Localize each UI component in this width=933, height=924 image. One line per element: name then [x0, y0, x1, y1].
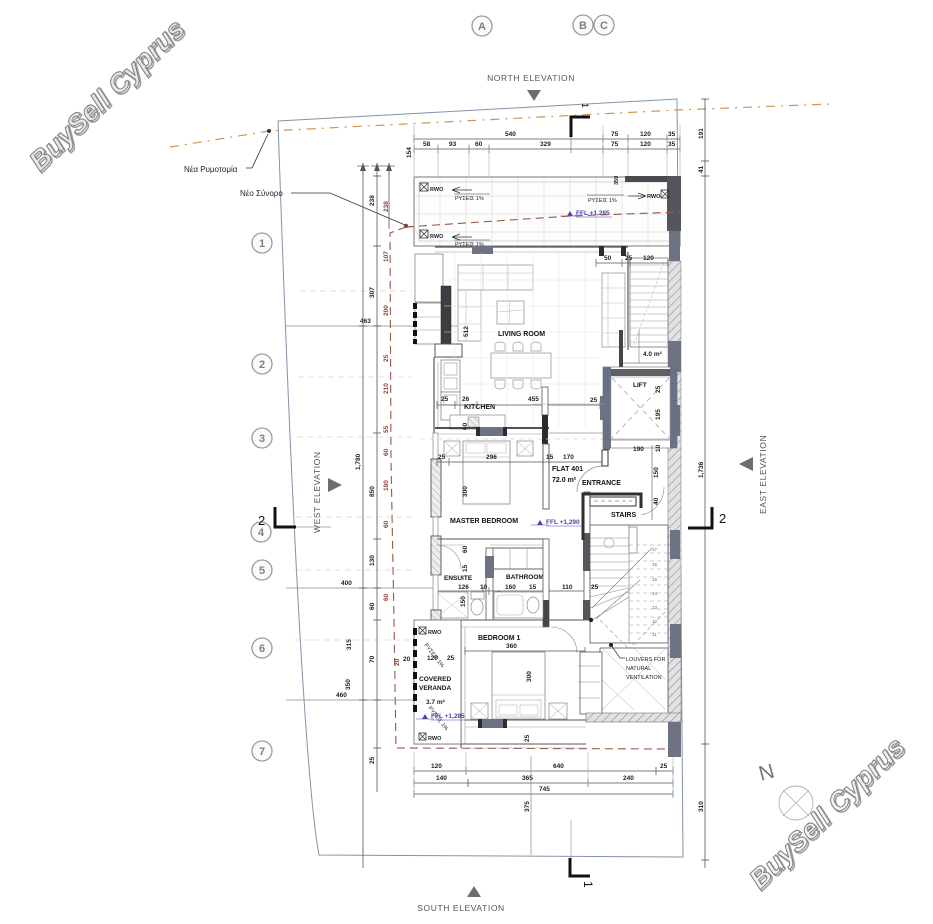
svg-text:2: 2: [259, 359, 265, 371]
svg-text:BEDROOM 1: BEDROOM 1: [478, 635, 521, 642]
svg-text:RWO: RWO: [430, 187, 444, 193]
svg-text:455: 455: [528, 396, 539, 403]
svg-text:120: 120: [640, 141, 651, 148]
svg-text:NORTH ELEVATION: NORTH ELEVATION: [487, 73, 575, 83]
svg-text:17: 17: [652, 547, 658, 552]
svg-text:25: 25: [590, 397, 598, 404]
svg-text:75: 75: [611, 131, 619, 138]
svg-text:20: 20: [403, 656, 411, 663]
svg-text:RWO: RWO: [647, 194, 661, 200]
svg-text:7: 7: [259, 746, 265, 758]
svg-text:12: 12: [652, 619, 658, 624]
svg-text:350: 350: [345, 679, 352, 690]
svg-text:60: 60: [462, 545, 469, 553]
svg-text:60: 60: [383, 448, 390, 456]
svg-text:160: 160: [505, 584, 516, 591]
svg-text:60: 60: [475, 141, 483, 148]
svg-text:60: 60: [383, 593, 390, 601]
svg-text:512: 512: [463, 326, 470, 337]
svg-text:16: 16: [652, 562, 658, 567]
svg-text:540: 540: [505, 131, 516, 138]
svg-text:11: 11: [652, 632, 657, 637]
svg-text:NATURAL: NATURAL: [626, 666, 651, 672]
svg-text:ENSUITE: ENSUITE: [444, 575, 473, 582]
svg-text:238: 238: [369, 195, 376, 206]
svg-text:210: 210: [383, 383, 390, 394]
svg-text:296: 296: [486, 454, 497, 461]
svg-text:25: 25: [524, 734, 531, 742]
svg-text:400: 400: [341, 580, 352, 587]
svg-text:4: 4: [258, 527, 265, 539]
svg-text:25: 25: [383, 354, 390, 362]
svg-text:315: 315: [346, 639, 353, 650]
svg-text:130: 130: [369, 555, 376, 566]
svg-text:LIVING ROOM: LIVING ROOM: [498, 331, 545, 338]
svg-text:120: 120: [640, 131, 651, 138]
svg-text:238: 238: [383, 201, 390, 212]
svg-text:300: 300: [526, 671, 533, 682]
svg-text:35: 35: [668, 141, 676, 148]
svg-text:120: 120: [643, 255, 654, 262]
svg-text:1: 1: [259, 238, 265, 250]
svg-text:375: 375: [524, 801, 531, 812]
svg-text:195: 195: [655, 409, 662, 420]
svg-text:745: 745: [539, 786, 550, 793]
svg-text:ΡΥΣΕΙΣ 1%: ΡΥΣΕΙΣ 1%: [588, 198, 617, 204]
svg-text:A: A: [478, 21, 486, 33]
svg-text:25: 25: [660, 763, 668, 770]
svg-text:25: 25: [438, 454, 446, 461]
svg-text:FFL +1,290: FFL +1,290: [546, 519, 580, 526]
svg-text:75: 75: [611, 141, 619, 148]
svg-text:26: 26: [462, 396, 470, 403]
svg-text:365: 365: [522, 775, 533, 782]
svg-text:LIFT: LIFT: [633, 382, 647, 389]
svg-text:VENTILATION: VENTILATION: [626, 675, 662, 681]
svg-text:25: 25: [591, 584, 599, 591]
svg-text:VERANDA: VERANDA: [419, 685, 451, 692]
svg-text:13: 13: [652, 605, 658, 610]
svg-text:70: 70: [369, 655, 376, 663]
svg-text:BATHROOM: BATHROOM: [506, 574, 544, 581]
svg-text:41: 41: [698, 165, 705, 173]
svg-text:126: 126: [458, 584, 469, 591]
svg-text:120: 120: [427, 655, 438, 662]
svg-text:93: 93: [449, 141, 457, 148]
svg-text:ΡΥΣΕΙΣ 1%: ΡΥΣΕΙΣ 1%: [455, 196, 484, 202]
svg-text:1,780: 1,780: [355, 453, 362, 470]
svg-text:140: 140: [436, 775, 447, 782]
svg-text:FLAT 401: FLAT 401: [552, 466, 583, 473]
svg-text:850: 850: [369, 486, 376, 497]
svg-text:300: 300: [462, 486, 469, 497]
svg-text:MASTER BEDROOM: MASTER BEDROOM: [450, 518, 518, 525]
svg-text:107: 107: [383, 251, 390, 262]
svg-text:329: 329: [540, 141, 551, 148]
svg-text:180: 180: [383, 480, 390, 491]
svg-text:Νέα Ρυμοτομία: Νέα Ρυμοτομία: [184, 165, 238, 174]
svg-text:460: 460: [336, 692, 347, 699]
svg-text:15: 15: [652, 577, 658, 582]
svg-text:150: 150: [653, 467, 660, 478]
svg-text:1: 1: [580, 103, 590, 108]
svg-text:310: 310: [698, 801, 705, 812]
svg-text:200: 200: [383, 305, 390, 316]
svg-text:WEST ELEVATION: WEST ELEVATION: [312, 451, 322, 533]
svg-text:10: 10: [655, 444, 662, 452]
svg-text:110: 110: [562, 584, 573, 591]
svg-text:Νέο Σύνορο: Νέο Σύνορο: [240, 189, 283, 198]
svg-text:15: 15: [462, 564, 469, 572]
svg-text:COVERED: COVERED: [419, 676, 451, 683]
svg-text:FFL +1,285: FFL +1,285: [431, 713, 465, 720]
svg-text:25: 25: [625, 255, 633, 262]
svg-text:25: 25: [441, 396, 449, 403]
svg-text:LOUVERS FOR: LOUVERS FOR: [626, 657, 665, 663]
svg-text:72.0 m²: 72.0 m²: [552, 477, 577, 484]
svg-text:307: 307: [369, 287, 376, 298]
svg-text:EAST ELEVATION: EAST ELEVATION: [758, 435, 768, 514]
svg-text:190: 190: [633, 446, 644, 453]
svg-text:359: 359: [614, 176, 620, 185]
svg-text:191: 191: [698, 128, 705, 139]
svg-text:170: 170: [563, 454, 574, 461]
svg-text:60: 60: [383, 520, 390, 528]
svg-text:1,736: 1,736: [698, 461, 705, 478]
svg-text:463: 463: [360, 318, 371, 325]
svg-text:240: 240: [623, 775, 634, 782]
svg-text:60: 60: [369, 602, 376, 610]
svg-text:120: 120: [431, 763, 442, 770]
svg-text:1: 1: [581, 881, 595, 888]
svg-text:6: 6: [259, 643, 265, 655]
svg-text:14: 14: [652, 591, 658, 596]
svg-text:3: 3: [259, 433, 265, 445]
svg-text:STAIRS: STAIRS: [611, 512, 636, 519]
svg-text:50: 50: [604, 255, 612, 262]
svg-text:RWO: RWO: [428, 736, 442, 742]
svg-text:3.7 m²: 3.7 m²: [426, 699, 446, 706]
svg-text:25: 25: [369, 756, 376, 764]
svg-text:ENTRANCE: ENTRANCE: [582, 480, 621, 487]
svg-text:360: 360: [506, 643, 517, 650]
svg-text:150: 150: [460, 596, 467, 607]
svg-text:2: 2: [719, 511, 726, 526]
svg-text:58: 58: [423, 141, 431, 148]
svg-text:35: 35: [668, 131, 676, 138]
svg-text:SOUTH ELEVATION: SOUTH ELEVATION: [417, 903, 505, 913]
svg-text:154: 154: [406, 147, 413, 158]
svg-text:5: 5: [259, 565, 265, 577]
svg-text:25: 25: [655, 385, 662, 393]
svg-text:C: C: [600, 20, 608, 32]
svg-text:25: 25: [447, 655, 455, 662]
svg-text:640: 640: [553, 763, 564, 770]
svg-text:15: 15: [529, 584, 537, 591]
svg-text:2: 2: [258, 513, 265, 528]
svg-text:10: 10: [480, 584, 488, 591]
svg-text:55: 55: [383, 425, 390, 433]
svg-text:RWO: RWO: [428, 630, 442, 636]
svg-text:20: 20: [394, 658, 401, 666]
svg-text:B: B: [579, 20, 587, 32]
svg-text:4.0 m²: 4.0 m²: [643, 351, 663, 358]
svg-text:15: 15: [546, 454, 554, 461]
svg-text:RWO: RWO: [430, 234, 444, 240]
